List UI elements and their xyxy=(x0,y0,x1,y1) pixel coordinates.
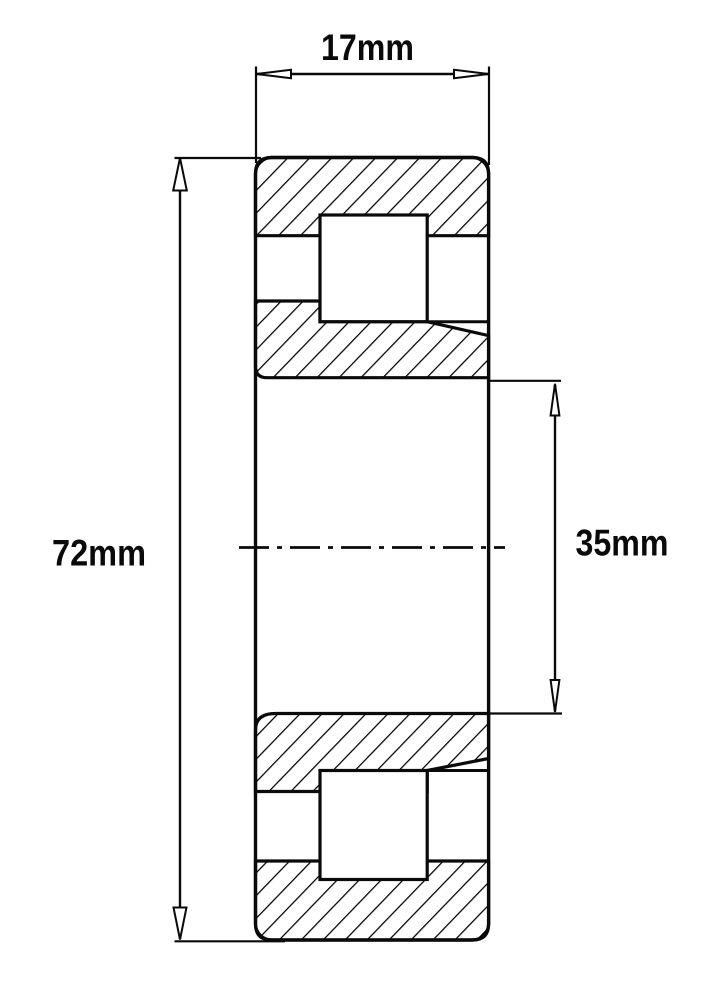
svg-text:17mm: 17mm xyxy=(321,26,414,68)
svg-text:72mm: 72mm xyxy=(52,532,146,574)
svg-text:35mm: 35mm xyxy=(576,522,669,564)
